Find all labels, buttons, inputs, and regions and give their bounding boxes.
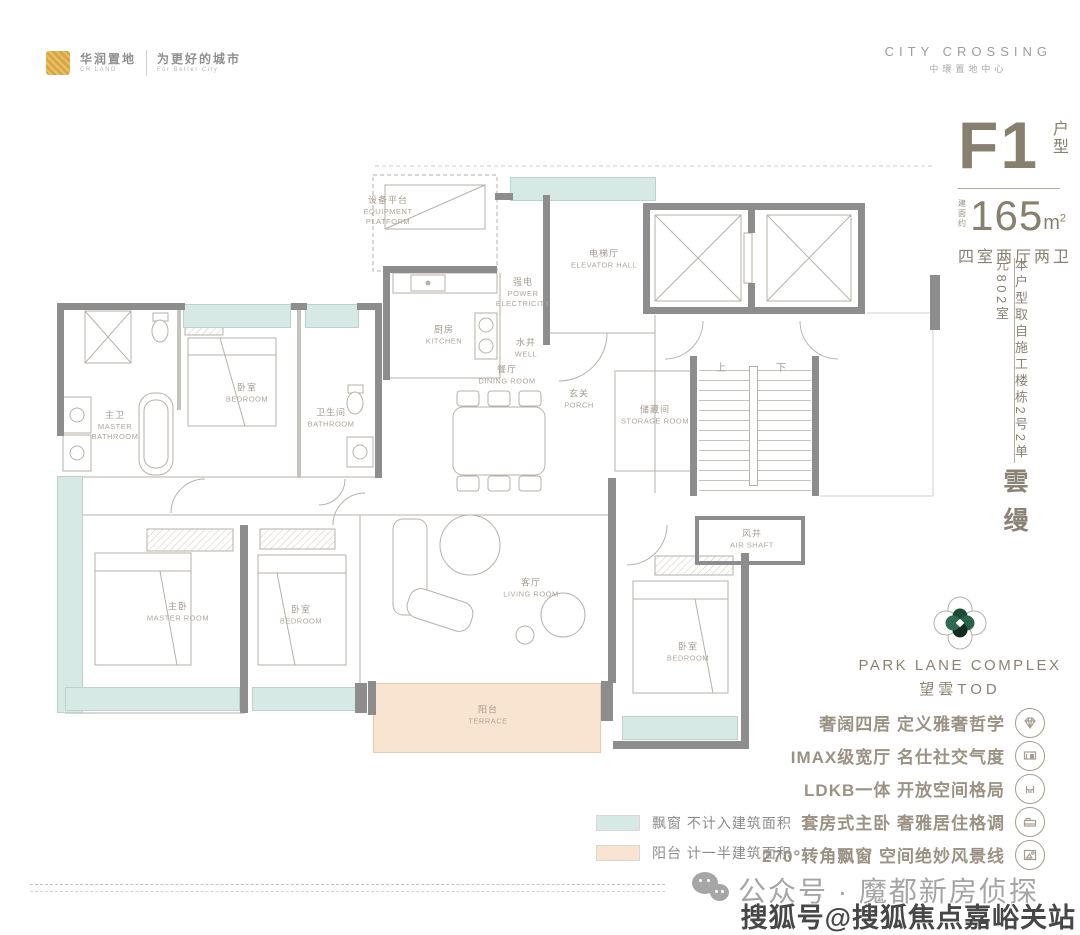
unit-info-panel: F1 户型 建面约 165 m2 四室两厅两卫: [958, 112, 1066, 267]
room-label-storage-room: 储藏间STORAGE ROOM: [620, 403, 690, 426]
room-label-living-room: 客厅LIVING ROOM: [503, 576, 559, 599]
unit-type-label: 户型: [1047, 120, 1068, 156]
stairs-up-label: 上: [716, 359, 726, 374]
room-label-well: 水井WELL: [515, 336, 537, 359]
cr-land-logo-icon: [46, 51, 70, 75]
room-label-equipment-platform: 设备平台EQUIPMENT PLATFORM: [353, 194, 423, 228]
legend-label: 阳台 计一半建筑面积: [652, 843, 792, 863]
bay-window: [65, 687, 240, 711]
area-superscript: 2: [1060, 212, 1066, 224]
project-lockup: CITY CROSSING 中環置地中心: [885, 44, 1052, 75]
bay-window-swatch: [596, 815, 640, 831]
floor-plan: 上 下 设备平台EQUIPMENT PLATFORM 卧室BEDROOM 主卫M…: [55, 163, 960, 813]
stairs-down-label: 下: [776, 359, 786, 374]
brand-lockup: 华润置地 CR LAND 为更好的城市 For Better City: [46, 50, 241, 76]
bay-window: [510, 177, 656, 201]
source-note-rule: [1014, 258, 1015, 463]
footer-dashed-line-2: [30, 891, 665, 892]
room-label-bedroom-2: 卧室BEDROOM: [280, 603, 322, 626]
room-label-terrace: 阳台TERRACE: [468, 703, 507, 726]
bed-icon: [1015, 807, 1045, 837]
legend-label: 飘窗 不计入建筑面积: [652, 813, 792, 833]
area-value: 165: [970, 197, 1043, 235]
source-note: 本户型取自施工楼栋2号2单元802室: [992, 258, 1030, 468]
diamond-icon: [1015, 708, 1045, 738]
project-name-en: CITY CROSSING: [885, 44, 1052, 59]
bay-window: [183, 304, 291, 328]
wechat-icon: [692, 872, 734, 908]
series-name: 雲缦: [996, 468, 1032, 546]
brand-name-en: CR LAND: [80, 67, 136, 73]
feature-label: 270°转角飘窗 空间绝妙风景线: [762, 842, 1005, 867]
room-label-elevator-hall: 电梯厅ELEVATOR HALL: [571, 247, 637, 270]
room-label-kitchen: 厨房KITCHEN: [426, 323, 462, 346]
watermark-text: 搜狐号@搜狐焦点嘉峪关站: [741, 896, 1076, 935]
room-label-master-room: 主卧MASTER ROOM: [147, 600, 209, 623]
bay-window: [622, 716, 738, 740]
bay-window-corner: [57, 476, 83, 713]
screen-icon: [1015, 741, 1045, 771]
unit-divider: [958, 188, 1060, 189]
bay-window: [305, 304, 359, 328]
room-label-air-shaft: 风井AIR SHAFT: [717, 527, 787, 550]
room-label-power: 强电POWER ELECTRICITY: [492, 276, 554, 310]
room-label-bathroom: 卫生间BATHROOM: [301, 406, 361, 429]
bay-window: [252, 687, 360, 711]
room-label-master-bathroom: 主卫MASTER BATHROOM: [83, 409, 147, 443]
room-label-dining-room: 餐厅DINING ROOM: [478, 363, 535, 386]
brand-slogan-cn: 为更好的城市: [157, 53, 241, 66]
legend: 飘窗 不计入建筑面积 阳台 计一半建筑面积: [596, 808, 792, 868]
room-label-bedroom-3: 卧室BEDROOM: [667, 640, 709, 663]
unit-code: F1: [958, 112, 1039, 178]
terrace-swatch: [596, 845, 640, 861]
brand-name-cn: 华润置地: [80, 53, 136, 66]
project-name-cn: 中環置地中心: [885, 62, 1052, 75]
room-label-bedroom-1: 卧室BEDROOM: [226, 381, 268, 404]
window-view-icon: [1015, 840, 1045, 870]
room-label-porch: 玄关PORCH: [564, 387, 594, 410]
area-unit: m: [1043, 212, 1060, 234]
stair-stringer: [749, 366, 758, 486]
legend-row: 阳台 计一半建筑面积: [596, 838, 792, 868]
brand-slogan-en: For Better City: [157, 67, 241, 73]
brand-divider: [146, 50, 147, 76]
social-seats-icon: [1015, 774, 1045, 804]
footer-dashed-line: [30, 884, 665, 885]
